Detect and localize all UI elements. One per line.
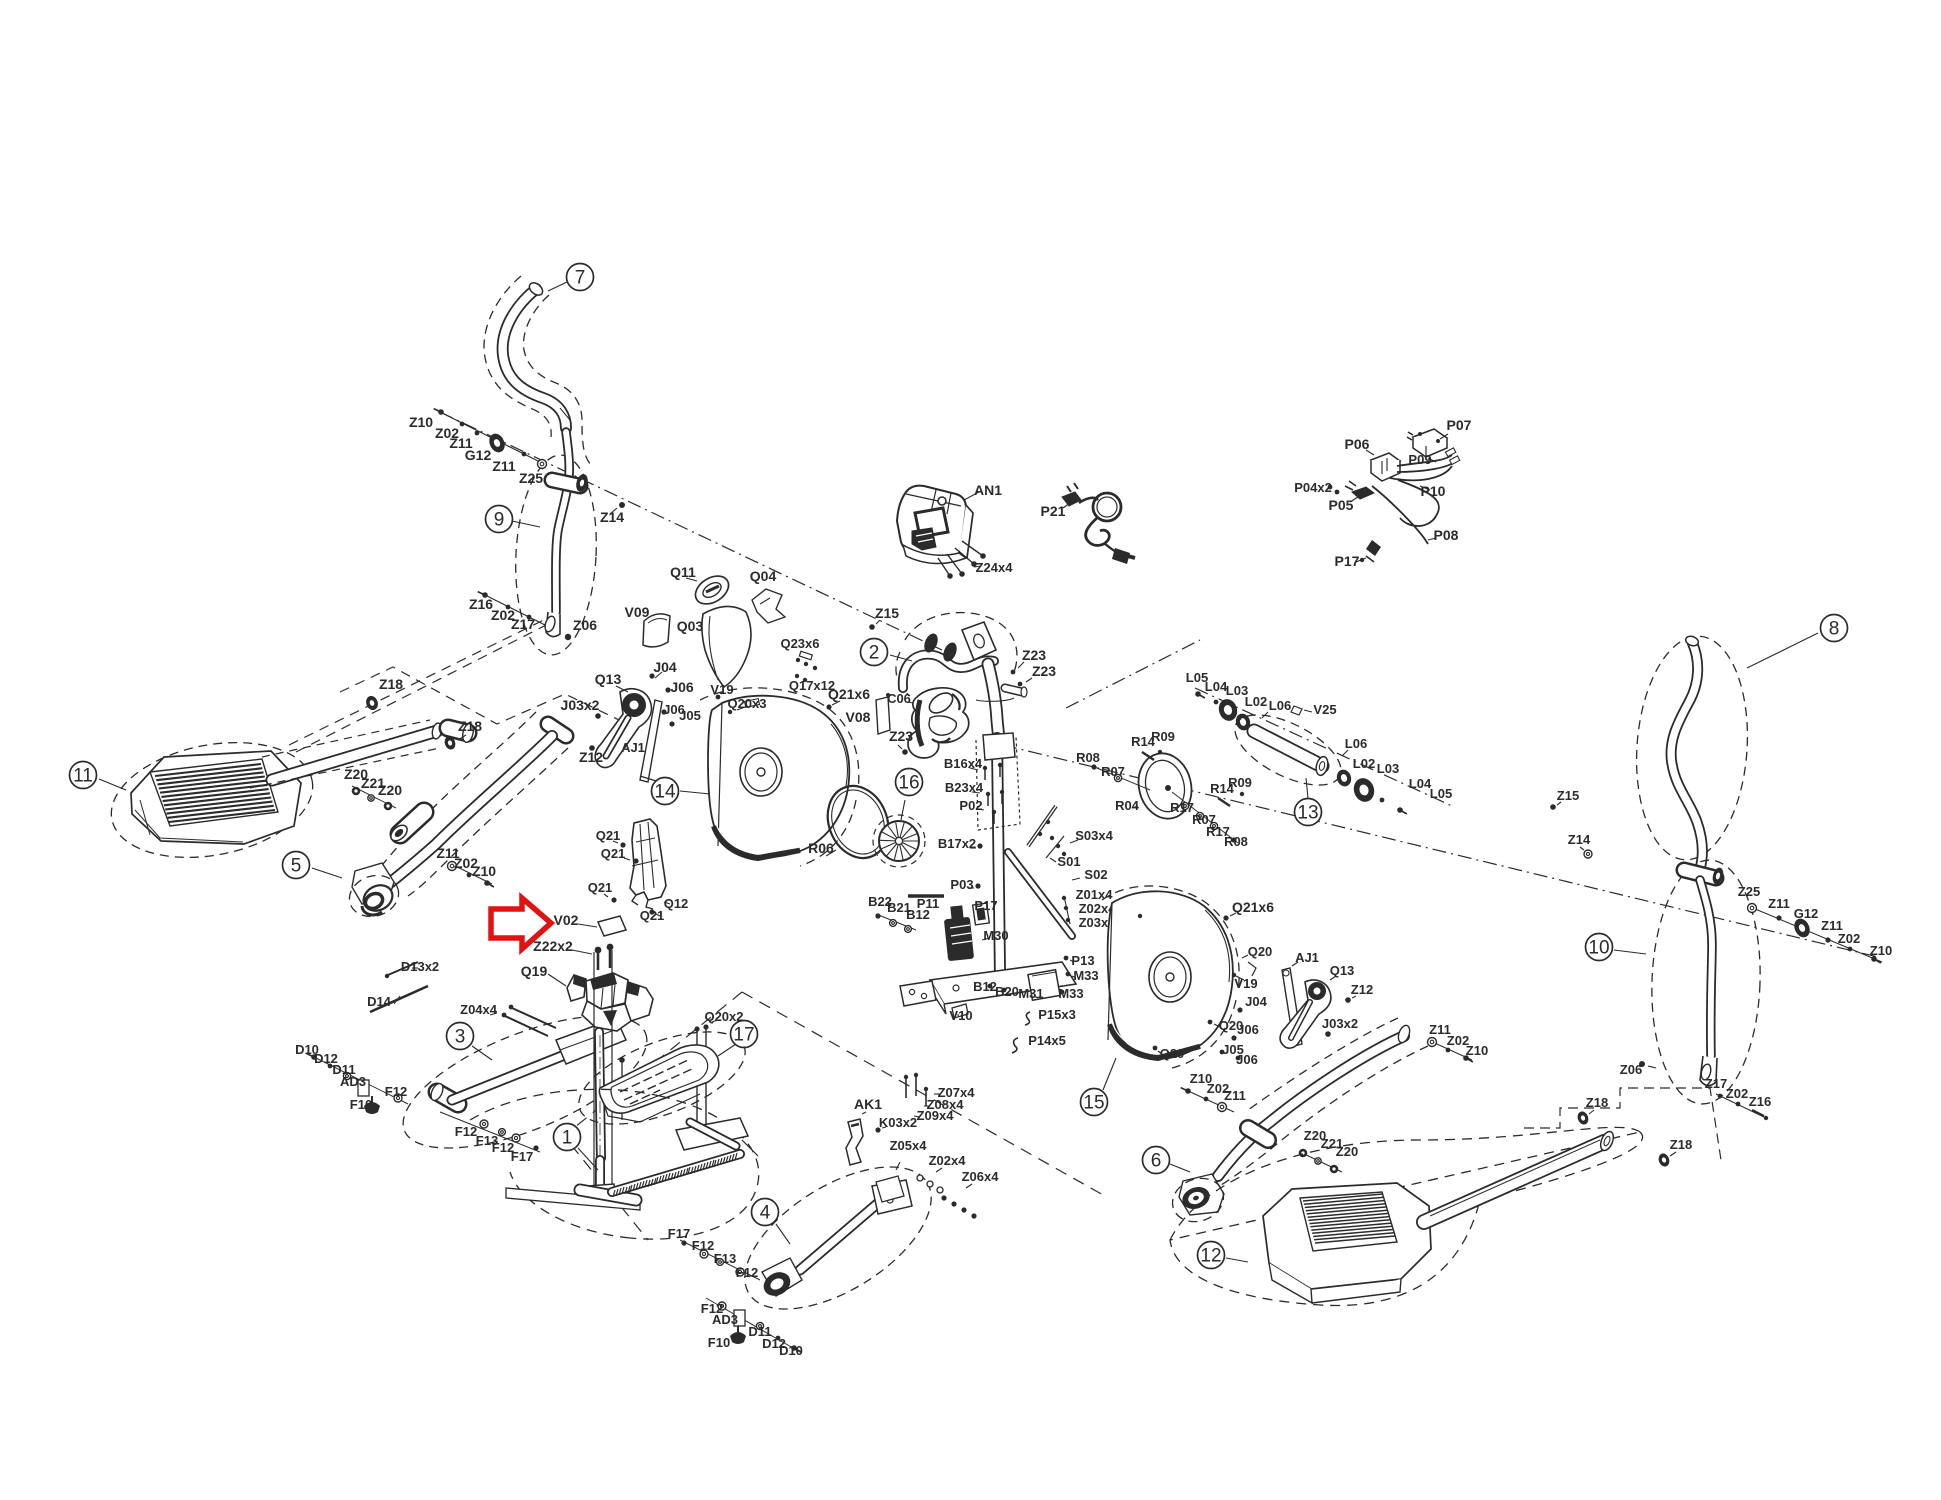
svg-text:Z15: Z15 xyxy=(1557,788,1579,803)
svg-text:P10: P10 xyxy=(1421,483,1446,499)
svg-text:Q13: Q13 xyxy=(595,671,622,687)
svg-text:R07: R07 xyxy=(1101,764,1125,779)
svg-text:1: 1 xyxy=(562,1128,573,1149)
svg-text:AJ1: AJ1 xyxy=(1295,950,1319,965)
svg-text:R09: R09 xyxy=(1228,775,1252,790)
svg-text:F12: F12 xyxy=(692,1238,714,1253)
svg-text:AJ1: AJ1 xyxy=(621,740,645,755)
svg-text:P07: P07 xyxy=(1447,417,1472,433)
svg-text:Q20x3: Q20x3 xyxy=(727,696,766,711)
svg-text:Z09x4: Z09x4 xyxy=(917,1108,955,1123)
svg-text:Z16: Z16 xyxy=(1749,1094,1771,1109)
svg-text:M30: M30 xyxy=(983,928,1008,943)
svg-text:Z06x4: Z06x4 xyxy=(962,1169,1000,1184)
svg-text:L02: L02 xyxy=(1245,694,1267,709)
svg-text:B16x4: B16x4 xyxy=(944,756,983,771)
svg-text:M33: M33 xyxy=(1058,986,1083,1001)
svg-text:5: 5 xyxy=(291,856,302,877)
svg-text:Z10: Z10 xyxy=(409,414,433,430)
svg-text:J06: J06 xyxy=(670,679,694,695)
svg-text:V19: V19 xyxy=(710,682,733,697)
svg-text:R08: R08 xyxy=(1224,834,1248,849)
svg-text:Z18: Z18 xyxy=(458,718,482,734)
svg-text:R08: R08 xyxy=(1076,750,1100,765)
svg-text:Q21: Q21 xyxy=(640,908,665,923)
svg-text:Z01x4: Z01x4 xyxy=(1076,887,1114,902)
svg-text:S03x4: S03x4 xyxy=(1075,828,1113,843)
svg-text:D14: D14 xyxy=(367,994,392,1009)
svg-text:Q21: Q21 xyxy=(596,828,621,843)
svg-text:AN1: AN1 xyxy=(974,482,1002,498)
svg-text:R17: R17 xyxy=(1170,800,1194,815)
svg-text:J03x2: J03x2 xyxy=(1322,1016,1358,1031)
svg-text:6: 6 xyxy=(1151,1151,1162,1172)
svg-text:11: 11 xyxy=(73,766,93,787)
svg-text:Z10: Z10 xyxy=(1466,1043,1488,1058)
svg-text:Z10: Z10 xyxy=(472,863,496,879)
svg-text:AK1: AK1 xyxy=(854,1096,882,1112)
svg-text:B12: B12 xyxy=(906,907,930,922)
svg-text:Z25: Z25 xyxy=(1738,884,1760,899)
svg-text:F17: F17 xyxy=(511,1149,533,1164)
svg-text:Q03: Q03 xyxy=(677,618,704,634)
svg-text:9: 9 xyxy=(494,510,505,531)
svg-text:Z23: Z23 xyxy=(889,728,913,744)
svg-text:M31: M31 xyxy=(1018,986,1043,1001)
svg-text:Q23x6: Q23x6 xyxy=(780,636,819,651)
svg-text:P21: P21 xyxy=(1041,503,1066,519)
svg-text:S01: S01 xyxy=(1057,854,1080,869)
svg-text:L02: L02 xyxy=(1353,756,1375,771)
svg-text:12: 12 xyxy=(1200,1246,1221,1267)
svg-text:Z11: Z11 xyxy=(1224,1088,1246,1103)
svg-text:F10: F10 xyxy=(350,1097,372,1112)
svg-text:R06: R06 xyxy=(808,840,834,856)
svg-text:F17: F17 xyxy=(668,1226,690,1241)
svg-text:M33: M33 xyxy=(1073,968,1098,983)
svg-text:Z23: Z23 xyxy=(1032,663,1056,679)
svg-text:13: 13 xyxy=(1297,803,1318,824)
svg-text:Z24x4: Z24x4 xyxy=(976,560,1014,575)
svg-text:Z18: Z18 xyxy=(379,676,403,692)
svg-text:Z12: Z12 xyxy=(1351,982,1373,997)
svg-text:P17: P17 xyxy=(974,898,997,913)
svg-text:Q11: Q11 xyxy=(670,564,696,580)
svg-text:P02: P02 xyxy=(959,798,982,813)
svg-text:7: 7 xyxy=(575,268,586,289)
svg-text:Q04: Q04 xyxy=(750,568,777,584)
svg-text:Z04x4: Z04x4 xyxy=(460,1002,498,1017)
svg-text:P03: P03 xyxy=(950,877,973,892)
svg-text:4: 4 xyxy=(760,1203,771,1224)
svg-text:L04: L04 xyxy=(1409,776,1432,791)
svg-text:Z15: Z15 xyxy=(875,605,899,621)
svg-text:Z18: Z18 xyxy=(1670,1137,1692,1152)
svg-text:Q21: Q21 xyxy=(588,880,613,895)
svg-text:Z02x4: Z02x4 xyxy=(929,1153,967,1168)
svg-text:P13: P13 xyxy=(1071,953,1094,968)
svg-text:Z06: Z06 xyxy=(573,617,597,633)
svg-text:J04: J04 xyxy=(1245,994,1267,1009)
svg-text:Z06: Z06 xyxy=(1620,1062,1642,1077)
svg-text:V19: V19 xyxy=(1234,976,1257,991)
svg-text:B23x4: B23x4 xyxy=(945,780,984,795)
svg-text:Z10: Z10 xyxy=(1870,943,1892,958)
svg-text:V10: V10 xyxy=(949,1008,972,1023)
svg-text:Z11: Z11 xyxy=(492,458,516,474)
svg-text:P09: P09 xyxy=(1408,452,1431,467)
svg-text:3: 3 xyxy=(455,1027,466,1048)
svg-text:Q21x6: Q21x6 xyxy=(1232,899,1274,915)
svg-text:B20: B20 xyxy=(995,984,1019,999)
svg-text:10: 10 xyxy=(1588,938,1609,959)
svg-text:Z05x4: Z05x4 xyxy=(890,1138,928,1153)
svg-text:Z12: Z12 xyxy=(579,749,603,765)
svg-text:17: 17 xyxy=(733,1025,754,1046)
svg-text:R09: R09 xyxy=(1151,729,1175,744)
svg-text:16: 16 xyxy=(898,773,919,794)
svg-text:V09: V09 xyxy=(625,604,650,620)
svg-text:Q19: Q19 xyxy=(521,963,548,979)
svg-text:V25: V25 xyxy=(1313,702,1336,717)
svg-text:J05: J05 xyxy=(679,708,701,723)
svg-text:F12: F12 xyxy=(736,1265,758,1280)
svg-text:Q20: Q20 xyxy=(1248,944,1273,959)
svg-text:F13: F13 xyxy=(714,1251,736,1266)
svg-text:P15x3: P15x3 xyxy=(1038,1007,1076,1022)
svg-text:Z22x2: Z22x2 xyxy=(533,938,573,954)
svg-text:P14x5: P14x5 xyxy=(1028,1033,1066,1048)
svg-text:D13x2: D13x2 xyxy=(401,959,439,974)
svg-text:Z25: Z25 xyxy=(519,470,543,486)
svg-text:AD3: AD3 xyxy=(340,1074,366,1089)
svg-text:P08: P08 xyxy=(1434,527,1459,543)
svg-text:Q21x6: Q21x6 xyxy=(828,686,870,702)
svg-text:Z02: Z02 xyxy=(1726,1086,1748,1101)
svg-text:P05: P05 xyxy=(1329,497,1354,513)
svg-text:Q20: Q20 xyxy=(1160,1046,1185,1061)
svg-text:Q13: Q13 xyxy=(1330,963,1355,978)
svg-text:Z14: Z14 xyxy=(600,509,624,525)
svg-text:L03: L03 xyxy=(1377,761,1399,776)
svg-text:J04: J04 xyxy=(653,659,677,675)
svg-text:S02: S02 xyxy=(1084,867,1107,882)
svg-text:Z14: Z14 xyxy=(1568,832,1591,847)
svg-text:P17: P17 xyxy=(1335,553,1360,569)
svg-text:Z17: Z17 xyxy=(1705,1076,1727,1091)
svg-text:L06: L06 xyxy=(1269,698,1291,713)
svg-text:C06: C06 xyxy=(887,691,911,706)
svg-text:K03x2: K03x2 xyxy=(879,1115,917,1130)
svg-text:R04: R04 xyxy=(1115,798,1140,813)
svg-text:G12: G12 xyxy=(1794,906,1819,921)
svg-text:J06: J06 xyxy=(1236,1052,1258,1067)
svg-text:L06: L06 xyxy=(1345,736,1367,751)
svg-text:Z17: Z17 xyxy=(511,616,535,632)
svg-text:J06: J06 xyxy=(1237,1022,1259,1037)
svg-text:Z23: Z23 xyxy=(1022,647,1046,663)
svg-text:F12: F12 xyxy=(455,1124,477,1139)
svg-text:F12: F12 xyxy=(385,1084,407,1099)
svg-text:Z11: Z11 xyxy=(1768,896,1790,911)
svg-text:B17x2: B17x2 xyxy=(938,836,976,851)
svg-text:Q21: Q21 xyxy=(601,846,626,861)
svg-text:14: 14 xyxy=(654,782,676,803)
svg-text:Z20: Z20 xyxy=(378,782,402,798)
svg-text:G12: G12 xyxy=(465,447,492,463)
svg-text:8: 8 xyxy=(1829,619,1840,640)
svg-text:Z16: Z16 xyxy=(469,596,493,612)
svg-text:P04x2: P04x2 xyxy=(1294,480,1332,495)
svg-text:2: 2 xyxy=(869,643,880,664)
svg-text:AD3: AD3 xyxy=(712,1312,738,1327)
svg-text:D10: D10 xyxy=(779,1343,803,1358)
svg-text:F10: F10 xyxy=(708,1335,730,1350)
svg-text:Z02: Z02 xyxy=(1838,931,1860,946)
svg-text:V08: V08 xyxy=(846,709,871,725)
svg-text:L04: L04 xyxy=(1205,679,1228,694)
svg-text:V02: V02 xyxy=(554,912,579,928)
svg-text:Q12: Q12 xyxy=(664,896,689,911)
svg-text:B12: B12 xyxy=(973,979,997,994)
svg-text:J03x2: J03x2 xyxy=(561,697,600,713)
svg-text:P06: P06 xyxy=(1345,436,1370,452)
svg-text:Z20: Z20 xyxy=(1336,1144,1358,1159)
svg-text:15: 15 xyxy=(1083,1093,1104,1114)
svg-text:L05: L05 xyxy=(1430,786,1452,801)
